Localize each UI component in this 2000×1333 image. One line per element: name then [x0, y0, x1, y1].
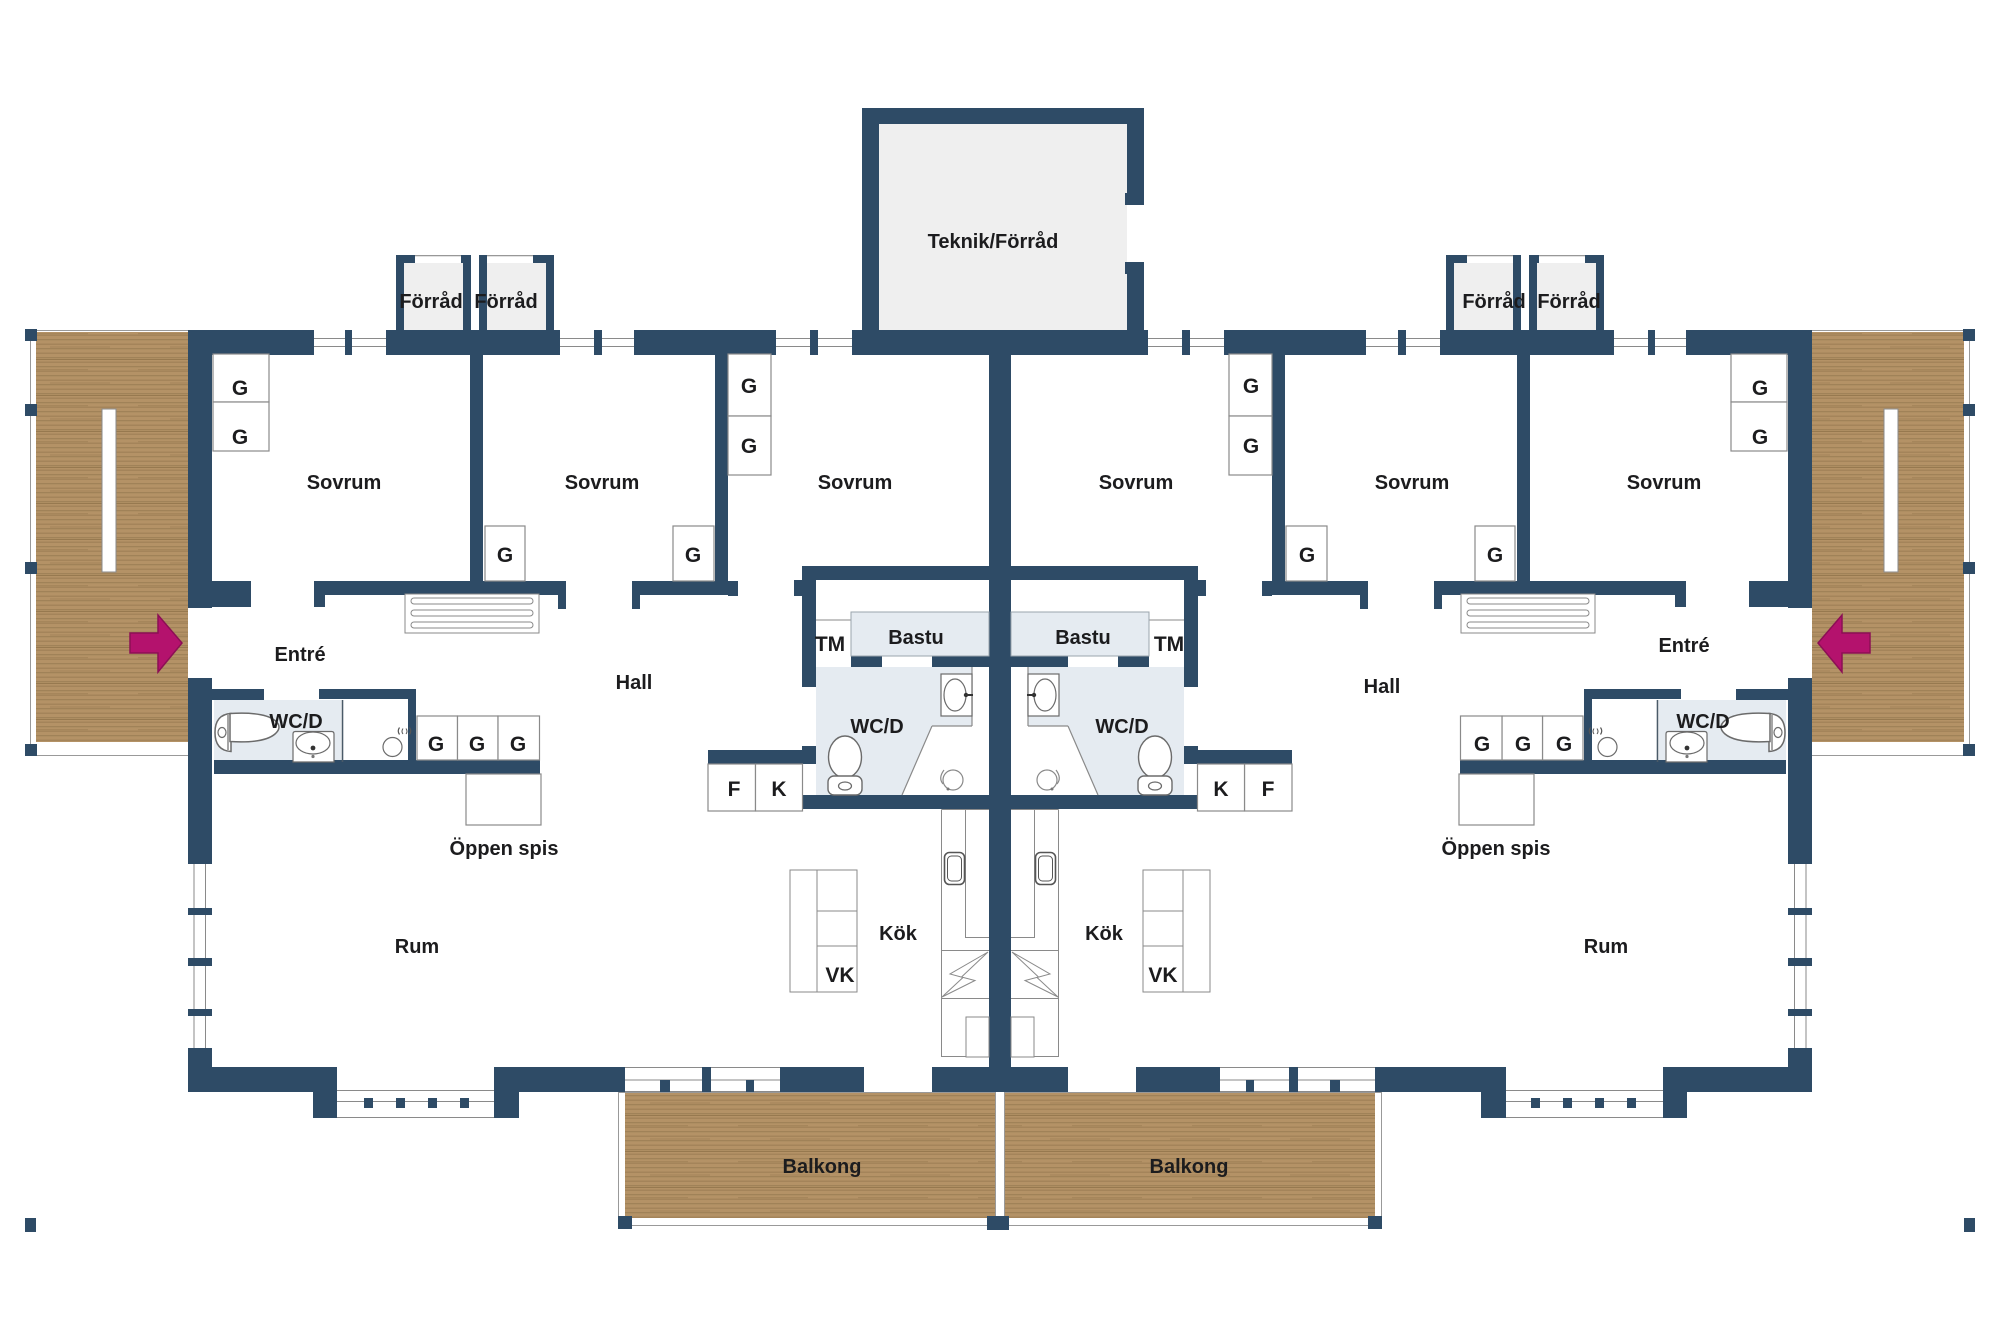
- svg-text:Sovrum: Sovrum: [565, 472, 639, 494]
- svg-text:Öppen spis: Öppen spis: [450, 837, 559, 860]
- svg-text:Balkong: Balkong: [1150, 1156, 1229, 1178]
- svg-text:G: G: [497, 544, 513, 567]
- svg-text:G: G: [1243, 435, 1259, 458]
- svg-text:Kök: Kök: [879, 923, 918, 945]
- svg-text:G: G: [685, 544, 701, 567]
- svg-text:Sovrum: Sovrum: [1099, 472, 1173, 494]
- svg-text:G: G: [741, 375, 757, 398]
- svg-text:G: G: [1487, 544, 1503, 567]
- svg-text:G: G: [469, 733, 485, 756]
- svg-text:G: G: [1515, 733, 1531, 756]
- svg-text:Rum: Rum: [395, 936, 439, 958]
- svg-text:G: G: [1474, 733, 1490, 756]
- svg-text:G: G: [428, 733, 444, 756]
- svg-text:Kök: Kök: [1085, 923, 1124, 945]
- svg-text:Rum: Rum: [1584, 936, 1628, 958]
- svg-text:WC/D: WC/D: [850, 716, 903, 738]
- svg-text:G: G: [510, 733, 526, 756]
- svg-text:Förråd: Förråd: [1537, 290, 1600, 313]
- svg-text:Sovrum: Sovrum: [307, 472, 381, 494]
- svg-text:G: G: [1752, 377, 1768, 400]
- svg-text:TM: TM: [1154, 633, 1184, 656]
- svg-text:Öppen spis: Öppen spis: [1442, 837, 1551, 860]
- svg-text:Förråd: Förråd: [399, 290, 462, 313]
- svg-text:F: F: [728, 778, 741, 801]
- svg-text:Hall: Hall: [616, 672, 653, 694]
- svg-text:G: G: [1243, 375, 1259, 398]
- svg-text:Förråd: Förråd: [1462, 290, 1525, 313]
- svg-text:Sovrum: Sovrum: [1375, 472, 1449, 494]
- svg-text:Bastu: Bastu: [1055, 627, 1111, 649]
- svg-text:Balkong: Balkong: [783, 1156, 862, 1178]
- svg-text:Entré: Entré: [1658, 635, 1709, 657]
- svg-text:Entré: Entré: [274, 644, 325, 666]
- svg-text:Sovrum: Sovrum: [1627, 472, 1701, 494]
- svg-text:G: G: [1299, 544, 1315, 567]
- svg-text:G: G: [741, 435, 757, 458]
- svg-text:Förråd: Förråd: [474, 290, 537, 313]
- svg-text:WC/D: WC/D: [1676, 711, 1729, 733]
- svg-text:F: F: [1262, 778, 1275, 801]
- svg-text:K: K: [771, 778, 786, 801]
- svg-text:WC/D: WC/D: [1095, 716, 1148, 738]
- svg-text:TM: TM: [815, 633, 845, 656]
- svg-text:G: G: [232, 426, 248, 449]
- svg-text:WC/D: WC/D: [269, 711, 322, 733]
- svg-text:G: G: [1556, 733, 1572, 756]
- svg-text:G: G: [1752, 426, 1768, 449]
- svg-text:K: K: [1213, 778, 1228, 801]
- svg-text:G: G: [232, 377, 248, 400]
- svg-text:Teknik/Förråd: Teknik/Förråd: [928, 230, 1059, 253]
- svg-text:VK: VK: [1148, 964, 1177, 987]
- svg-text:VK: VK: [825, 964, 854, 987]
- svg-text:Sovrum: Sovrum: [818, 472, 892, 494]
- svg-text:Bastu: Bastu: [888, 627, 944, 649]
- svg-text:Hall: Hall: [1364, 676, 1401, 698]
